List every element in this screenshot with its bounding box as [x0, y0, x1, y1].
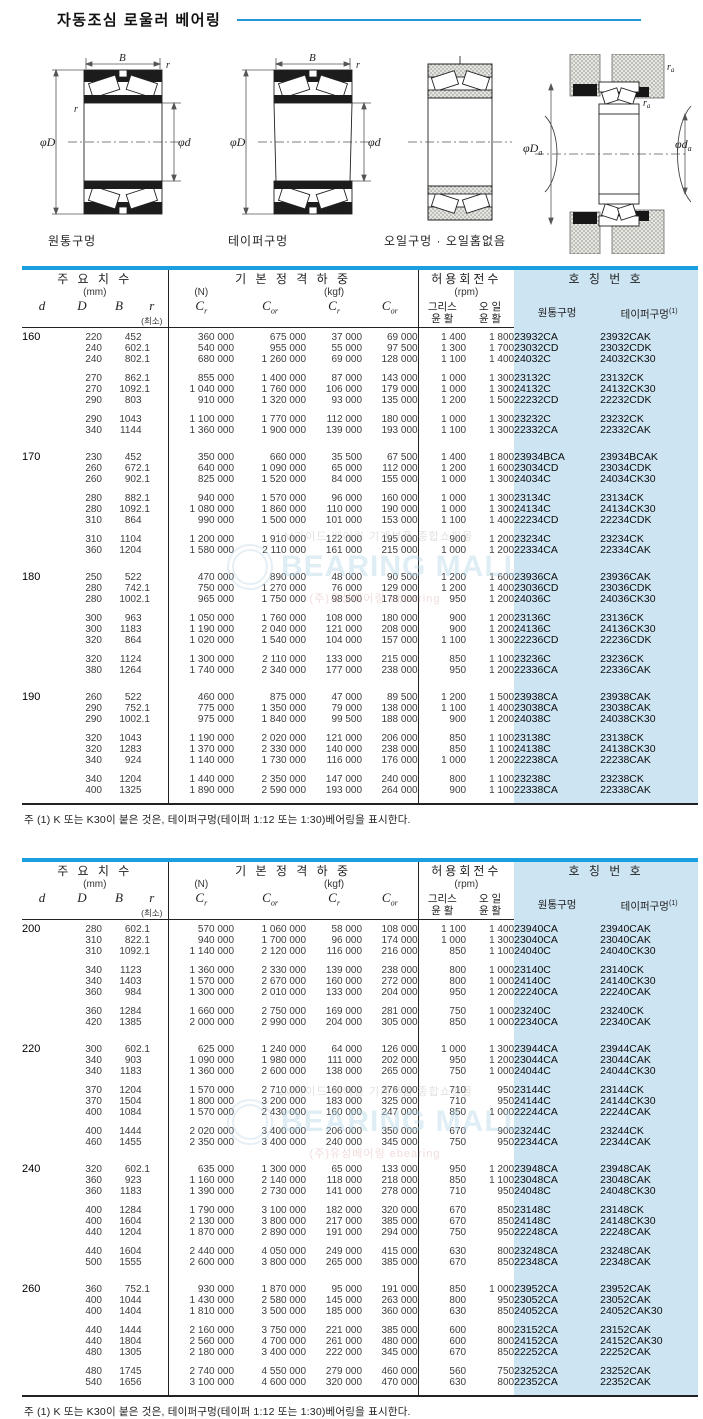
cell-value: 5: [136, 785, 168, 796]
cell-value: 90: [102, 1055, 136, 1066]
cell-value: 1 900 000: [234, 425, 306, 436]
cell-value: 104: [102, 1295, 136, 1306]
cell-value: 1 800: [466, 448, 514, 463]
row-spacer: [22, 406, 698, 414]
cell-value: 1 400: [466, 583, 514, 594]
row-spacer: [22, 1358, 698, 1366]
cell-value: 1 000: [418, 384, 466, 395]
cell-value: 1 890 000: [168, 785, 234, 796]
cell-value: 216 000: [362, 946, 418, 957]
cell-bore-diameter: [22, 1325, 62, 1336]
cell-value: 5: [136, 1137, 168, 1148]
cell-part-number: 24134C: [514, 504, 600, 515]
row-spacer: [22, 1028, 698, 1040]
cell-bore-diameter: [22, 654, 62, 665]
cell-value: 1 500: [466, 395, 514, 406]
cell-value: 1 200: [466, 534, 514, 545]
cell-value: 950: [466, 1085, 514, 1096]
cell-value: 160 000: [362, 493, 418, 504]
cell-value: 121 000: [306, 733, 362, 744]
cell-value: 2.1: [136, 463, 168, 474]
cell-value: 950: [418, 987, 466, 998]
cell-value: 850: [418, 654, 466, 665]
col-cr-kgf: Cr: [306, 298, 362, 328]
cell-value: 1 370 000: [168, 744, 234, 755]
cell-value: 710: [418, 1186, 466, 1197]
cell-value: 340: [62, 1055, 102, 1066]
cell-value: 950: [418, 1055, 466, 1066]
col-r: r(최소): [136, 890, 168, 920]
cell-value: 206 000: [362, 733, 418, 744]
cell-value: 875 000: [234, 688, 306, 703]
cell-value: 67 500: [362, 448, 418, 463]
cell-value: 370: [62, 1096, 102, 1107]
cell-value: 3 750 000: [234, 1325, 306, 1336]
cell-value: 132: [102, 785, 136, 796]
cell-value: 400: [62, 1216, 102, 1227]
cell-value: 440: [62, 1336, 102, 1347]
cell-value: 118 000: [306, 1175, 362, 1186]
cell-part-number: 22244CAK: [600, 1107, 698, 1118]
cell-value: 6: [136, 1377, 168, 1388]
cell-value: 3 800 000: [234, 1257, 306, 1268]
cell-value: 1 300: [466, 1040, 514, 1055]
dim-label-r: r: [74, 104, 78, 115]
cell-value: 1 000: [466, 976, 514, 987]
cell-value: 165: [102, 1377, 136, 1388]
cell-value: 265 000: [362, 1066, 418, 1077]
cell-value: 1 000: [466, 965, 514, 976]
cell-value: 55 000: [306, 343, 362, 354]
cell-value: 3: [136, 624, 168, 635]
cell-value: 2 750 000: [234, 1006, 306, 1017]
col-d: d: [22, 298, 62, 328]
cell-value: 1 100: [466, 654, 514, 665]
bearing-diagram-cylindrical-bore: φD φd B r r: [40, 54, 220, 231]
cell-part-number: 23148C: [514, 1205, 600, 1216]
cell-part-number: 23144C: [514, 1085, 600, 1096]
cell-value: 1 200: [466, 594, 514, 605]
cell-bore-diameter: [22, 1257, 62, 1268]
cell-value: 2: [136, 568, 168, 583]
cell-value: 1 140 000: [168, 755, 234, 766]
cell-value: 630: [418, 1306, 466, 1317]
table-row: 29010431 100 0001 770 000112 000180 0001…: [22, 414, 698, 425]
table-row: 2901002.1975 0001 840 00099 500188 00090…: [22, 714, 698, 725]
cell-part-number: 23944CAK: [600, 1040, 698, 1055]
cell-part-number: 23240C: [514, 1006, 600, 1017]
table-row: 42013852 000 0002 990 000204 000305 0008…: [22, 1017, 698, 1028]
row-spacer: [22, 1197, 698, 1205]
cell-bore-diameter: 240: [22, 1160, 62, 1175]
cell-value: 480 000: [362, 1336, 418, 1347]
cell-value: 3 400 000: [234, 1126, 306, 1137]
row-spacer: [22, 998, 698, 1006]
cell-part-number: 23136C: [514, 613, 600, 624]
cell-part-number: 24048CK30: [600, 1186, 698, 1197]
cell-value: 950: [466, 1137, 514, 1148]
cell-value: 2: [136, 328, 168, 344]
cell-value: 630: [418, 1377, 466, 1388]
cell-part-number: 23952CA: [514, 1280, 600, 1295]
cell-value: 120: [102, 545, 136, 556]
cell-value: 118: [102, 1186, 136, 1197]
cell-bore-diameter: 160: [22, 328, 62, 344]
cell-value: 276 000: [362, 1085, 418, 1096]
dim-label-B: B: [119, 54, 126, 64]
cell-value: 775 000: [168, 703, 234, 714]
cell-part-number: 24132C: [514, 384, 600, 395]
cell-value: 2 120 000: [234, 946, 306, 957]
cell-value: 4: [136, 654, 168, 665]
cell-value: 3: [136, 1186, 168, 1197]
cell-part-number: 22244CA: [514, 1107, 600, 1118]
cell-value: 260: [62, 463, 102, 474]
cell-value: 1 360 000: [168, 425, 234, 436]
cell-value: 670: [418, 1216, 466, 1227]
cell-value: 160 000: [306, 976, 362, 987]
cell-value: 600: [418, 1336, 466, 1347]
cell-bore-diameter: [22, 1377, 62, 1388]
table-row: 220300602.1625 0001 240 00064 000126 000…: [22, 1040, 698, 1055]
cell-value: 58 000: [306, 920, 362, 936]
cell-value: 4 700 000: [234, 1336, 306, 1347]
cell-value: 800: [418, 976, 466, 987]
cell-value: 1 580 000: [168, 545, 234, 556]
cell-value: 360: [62, 545, 102, 556]
cell-value: 1 570 000: [234, 493, 306, 504]
cell-value: 101 000: [306, 515, 362, 526]
cell-value: 825 000: [168, 474, 234, 485]
cell-part-number: 22240CA: [514, 987, 600, 998]
cell-value: 360: [62, 1175, 102, 1186]
cell-value: 180 000: [362, 414, 418, 425]
cell-value: 480: [62, 1366, 102, 1377]
cell-value: 3: [136, 414, 168, 425]
cell-value: 1 100: [466, 744, 514, 755]
cell-value: 180 000: [362, 613, 418, 624]
cell-value: 86: [102, 373, 136, 384]
cell-bore-diameter: 200: [22, 920, 62, 936]
spec-table-2: 주 요 치 수 기 본 정 격 하 중 허용회전수 호 칭 번 호 (mm) (…: [22, 858, 698, 1397]
cell-value: 1 300 000: [168, 654, 234, 665]
cell-bore-diameter: [22, 534, 62, 545]
col-cor-kgf: Cor: [362, 890, 418, 920]
unit-rpm: (rpm): [418, 879, 514, 890]
cell-value: 850: [418, 1017, 466, 1028]
cell-value: 128: [102, 744, 136, 755]
cell-value: 1 100: [466, 733, 514, 744]
cell-value: 140: [102, 976, 136, 987]
cell-value: 67: [102, 463, 136, 474]
cell-value: 64 000: [306, 1040, 362, 1055]
cell-value: 250: [62, 568, 102, 583]
cell-value: 87 000: [306, 373, 362, 384]
cell-value: 52: [102, 688, 136, 703]
header-load-rating: 기 본 정 격 하 중: [168, 268, 418, 287]
cell-part-number: 23944CA: [514, 1040, 600, 1055]
cell-value: 2: [136, 688, 168, 703]
cell-value: 850: [466, 1216, 514, 1227]
cell-value: 2.1: [136, 714, 168, 725]
cell-value: 4: [136, 1325, 168, 1336]
cell-value: 1 200: [466, 1055, 514, 1066]
cell-value: 680 000: [168, 354, 234, 365]
cell-value: 1 300: [466, 493, 514, 504]
cell-value: 850: [418, 744, 466, 755]
cell-value: 238 000: [362, 965, 418, 976]
cell-value: 800: [466, 1377, 514, 1388]
cell-value: 630: [418, 1246, 466, 1257]
cell-value: 260: [62, 474, 102, 485]
cell-value: 2 110 000: [234, 654, 306, 665]
cell-part-number: 24144CK30: [600, 1096, 698, 1107]
cell-value: 174 000: [362, 935, 418, 946]
cell-bore-diameter: [22, 594, 62, 605]
cell-value: 850: [466, 1257, 514, 1268]
cell-value: 4: [136, 987, 168, 998]
cell-value: 90: [102, 474, 136, 485]
table-row: 290803910 0001 320 00093 000135 0001 200…: [22, 395, 698, 406]
row-spacer: [22, 1077, 698, 1085]
cell-value: 850: [466, 1205, 514, 1216]
cell-bore-diameter: [22, 504, 62, 515]
figures-strip: φD φd B r r: [0, 54, 703, 266]
cell-value: 144: [102, 1325, 136, 1336]
cell-part-number: 24036CK30: [600, 594, 698, 605]
cell-part-number: 22234CD: [514, 515, 600, 526]
cell-value: 88: [102, 493, 136, 504]
cell-value: 112: [102, 965, 136, 976]
cell-value: 1 000: [418, 414, 466, 425]
cell-value: 1 730 000: [234, 755, 306, 766]
cell-value: 900: [418, 714, 466, 725]
cell-bore-diameter: 170: [22, 448, 62, 463]
col-r: r(최소): [136, 298, 168, 328]
cell-value: 1 520 000: [234, 474, 306, 485]
cell-value: 340: [62, 755, 102, 766]
figure-caption-tapered: 테이퍼구멍: [228, 232, 288, 249]
row-spacer: [22, 556, 698, 568]
cell-bore-diameter: 190: [22, 688, 62, 703]
header-part-number: 호 칭 번 호: [514, 268, 698, 287]
cell-part-number: 23152CA: [514, 1325, 600, 1336]
table-row: 160220452360 000675 00037 00069 0001 400…: [22, 328, 698, 344]
cell-value: 3 500 000: [234, 1306, 306, 1317]
col-tapered-bore: 테이퍼구멍(1): [600, 298, 698, 328]
cell-value: 1 000: [418, 935, 466, 946]
cell-value: 108: [102, 1107, 136, 1118]
cell-value: 3 100 000: [234, 1205, 306, 1216]
cell-value: 540 000: [168, 343, 234, 354]
cell-value: 240 000: [362, 774, 418, 785]
cell-bore-diameter: [22, 1295, 62, 1306]
cell-value: 97 500: [362, 343, 418, 354]
cell-bore-diameter: [22, 1066, 62, 1077]
col-cr-n: Cr: [168, 890, 234, 920]
cell-part-number: 24048C: [514, 1186, 600, 1197]
cell-value: 182 000: [306, 1205, 362, 1216]
cell-value: 540: [62, 1377, 102, 1388]
cell-part-number: 24136CK30: [600, 624, 698, 635]
cell-part-number: 23948CAK: [600, 1160, 698, 1175]
cell-value: 2 330 000: [234, 744, 306, 755]
cell-value: 1 360 000: [168, 1066, 234, 1077]
table-row: 180250522470 000890 00048 00090 5001 200…: [22, 568, 698, 583]
table-row: 30011831 190 0002 040 000121 000208 0009…: [22, 624, 698, 635]
cell-value: 750: [418, 1137, 466, 1148]
cell-bore-diameter: [22, 1227, 62, 1238]
cell-value: 2 140 000: [234, 1175, 306, 1186]
cell-value: 325 000: [362, 1096, 418, 1107]
cell-value: 670: [418, 1205, 466, 1216]
cell-part-number: 23134CK: [600, 493, 698, 504]
spec-table-1: 주 요 치 수 기 본 정 격 하 중 허용회전수 호 칭 번 호 (mm) (…: [22, 266, 698, 805]
cell-value: 280: [62, 583, 102, 594]
dim-label-phiD: φD: [230, 135, 246, 149]
cell-value: 800: [466, 1246, 514, 1257]
cell-part-number: 24140C: [514, 976, 600, 987]
cell-value: 65 000: [306, 463, 362, 474]
dim-label-phida: φda: [675, 137, 692, 153]
cell-value: 2 430 000: [234, 1107, 306, 1118]
cell-bore-diameter: [22, 1006, 62, 1017]
cell-part-number: 23148CK: [600, 1205, 698, 1216]
cell-value: 2 350 000: [168, 1137, 234, 1148]
cell-value: 2.1: [136, 384, 168, 395]
cell-part-number: 23936CA: [514, 568, 600, 583]
footnote-table2: 주 (1) K 또는 K30이 붙은 것은, 테이퍼구멍(테이퍼 1:12 또는…: [24, 1404, 703, 1419]
cell-value: 1 400 000: [234, 373, 306, 384]
cell-part-number: 23040CAK: [600, 935, 698, 946]
cell-value: 1 300: [466, 504, 514, 515]
table-row: 2801002.1965 0001 750 00098 500178 00095…: [22, 594, 698, 605]
cell-value: 4: [136, 1126, 168, 1137]
cell-part-number: 23248CA: [514, 1246, 600, 1257]
cell-value: 139 000: [306, 965, 362, 976]
cell-bore-diameter: [22, 624, 62, 635]
cell-value: 400: [62, 1205, 102, 1216]
cell-value: 150: [102, 1096, 136, 1107]
cell-value: 4 600 000: [234, 1377, 306, 1388]
cell-value: 1 360 000: [168, 965, 234, 976]
cell-value: 750: [418, 1066, 466, 1077]
table-row: 40013251 890 0002 590 000193 000264 0009…: [22, 785, 698, 796]
cell-value: 116 000: [306, 946, 362, 957]
cell-bore-diameter: [22, 583, 62, 594]
cell-value: 84 000: [306, 474, 362, 485]
col-oil: 오 일윤 활: [466, 890, 514, 920]
cell-bore-diameter: [22, 1347, 62, 1358]
cell-value: 139 000: [306, 425, 362, 436]
cell-part-number: 23240CK: [600, 1006, 698, 1017]
cell-value: 750: [466, 1366, 514, 1377]
cell-bore-diameter: [22, 1137, 62, 1148]
cell-value: 2 730 000: [234, 1186, 306, 1197]
cell-part-number: 22344CA: [514, 1137, 600, 1148]
cell-value: 1 400: [418, 328, 466, 344]
cell-value: 1 000: [466, 1280, 514, 1295]
cell-value: 2 560 000: [168, 1336, 234, 1347]
cell-value: 2 110 000: [234, 545, 306, 556]
cell-value: 460: [62, 1137, 102, 1148]
cell-value: 281 000: [362, 1006, 418, 1017]
cell-value: 5: [136, 1347, 168, 1358]
table-row: 40010841 570 0002 430 000160 000247 0008…: [22, 1107, 698, 1118]
cell-part-number: 22232CDK: [600, 395, 698, 406]
cell-part-number: 24032CK30: [600, 354, 698, 365]
cell-value: 635 000: [168, 1160, 234, 1175]
cell-value: 143 000: [362, 373, 418, 384]
table-row: 37015041 800 0003 200 000183 000325 0007…: [22, 1096, 698, 1107]
cell-value: 126 000: [362, 1040, 418, 1055]
cell-value: 4: [136, 1227, 168, 1238]
cell-part-number: 23244C: [514, 1126, 600, 1137]
cell-value: 176 000: [362, 755, 418, 766]
cell-bore-diameter: [22, 1096, 62, 1107]
cell-value: 1 100: [418, 635, 466, 646]
cell-value: 300: [62, 613, 102, 624]
cell-value: 1 000: [466, 1066, 514, 1077]
cell-value: 1 500 000: [234, 515, 306, 526]
table-row: 34011831 360 0002 600 000138 000265 0007…: [22, 1066, 698, 1077]
cell-value: 1 000: [418, 1040, 466, 1055]
cell-part-number: 24032C: [514, 354, 600, 365]
col-grease: 그리스윤 활: [418, 298, 466, 328]
cell-value: 360 000: [168, 328, 234, 344]
cell-bore-diameter: [22, 665, 62, 676]
col-cr-n: Cr: [168, 298, 234, 328]
cell-value: 360: [62, 987, 102, 998]
cell-value: 1 270 000: [234, 583, 306, 594]
cell-value: 340: [62, 774, 102, 785]
row-spacer: [22, 436, 698, 448]
cell-value: 1 190 000: [168, 733, 234, 744]
cell-value: 98 500: [306, 594, 362, 605]
cell-value: 3: [136, 1066, 168, 1077]
table-row: 36012041 580 0002 110 000161 000215 0001…: [22, 545, 698, 556]
bearing-diagram-mounted: φDa φda ra ra: [515, 54, 701, 259]
cell-value: 1 080 000: [168, 504, 234, 515]
cell-value: 104: [102, 414, 136, 425]
cell-value: 161 000: [306, 545, 362, 556]
col-D: D: [62, 298, 102, 328]
cell-value: 560: [418, 1366, 466, 1377]
cell-value: 79 000: [306, 703, 362, 714]
table-row: 240320602.1635 0001 300 00065 000133 000…: [22, 1160, 698, 1175]
cell-value: 4: [136, 1085, 168, 1096]
cell-value: 112 000: [306, 414, 362, 425]
cell-part-number: 23032CD: [514, 343, 600, 354]
cell-part-number: 22344CAK: [600, 1137, 698, 1148]
cell-value: 1 200: [466, 665, 514, 676]
dim-label-phiD: φD: [40, 135, 56, 149]
cell-value: 106 000: [306, 384, 362, 395]
cell-part-number: 23048CAK: [600, 1175, 698, 1186]
cell-value: 1 800 000: [168, 1096, 234, 1107]
cell-value: 600: [418, 1325, 466, 1336]
cell-bore-diameter: 220: [22, 1040, 62, 1055]
cell-value: 193 000: [306, 785, 362, 796]
cell-value: 1 000: [418, 474, 466, 485]
cell-value: 500: [62, 1257, 102, 1268]
cell-part-number: 23252CA: [514, 1366, 600, 1377]
cell-value: 2.1: [136, 946, 168, 957]
cell-value: 1 100: [418, 515, 466, 526]
cell-value: 112 000: [362, 463, 418, 474]
cell-value: 1 200: [418, 688, 466, 703]
cell-value: 4: [136, 1295, 168, 1306]
